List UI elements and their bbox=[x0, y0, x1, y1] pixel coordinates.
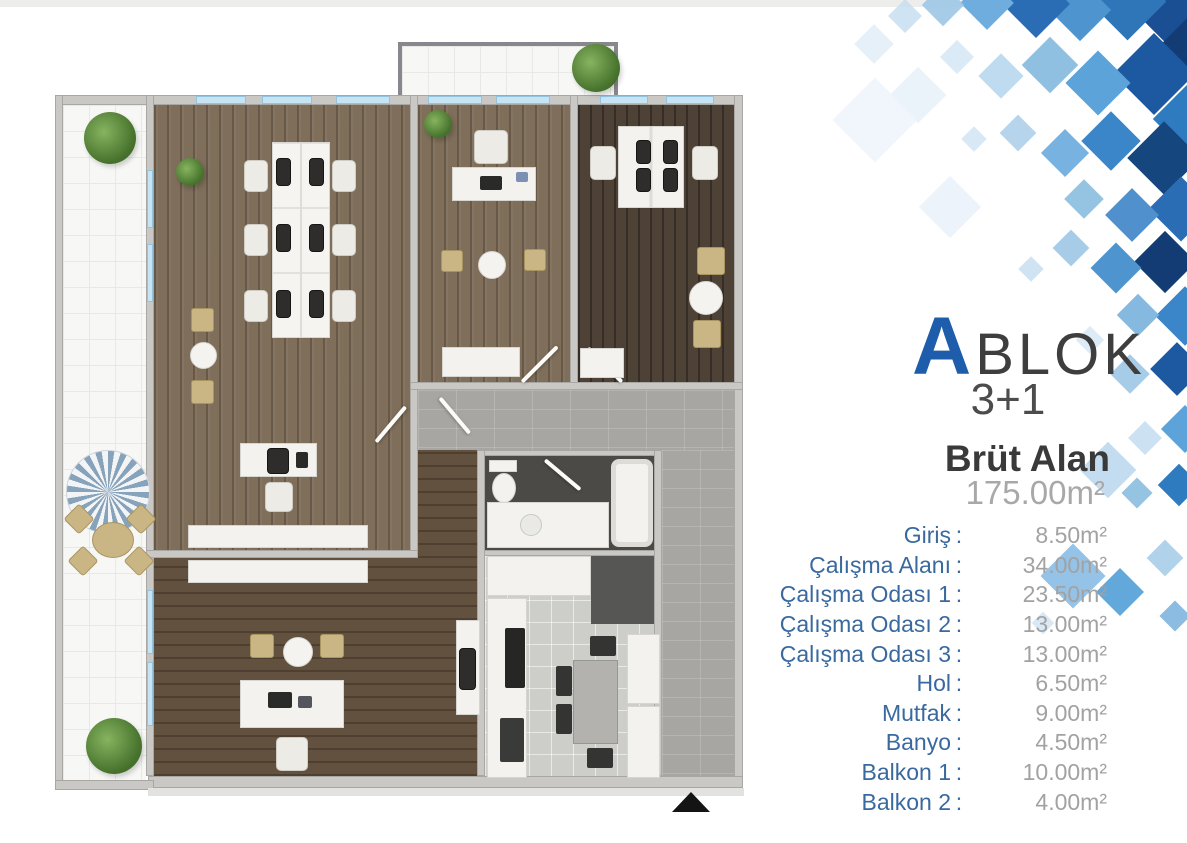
stool bbox=[524, 249, 546, 271]
monitor bbox=[268, 692, 292, 708]
room-label: Balkon 2 bbox=[735, 791, 951, 814]
plan-shadow bbox=[148, 788, 744, 796]
legend-row: Balkon 1:10.00m² bbox=[735, 758, 1107, 788]
wall-ws1-south bbox=[146, 550, 418, 558]
diamond-decor bbox=[1053, 230, 1090, 267]
floorplan-poster: A BLOK 3+1 Brüt Alan 175.00m² Giriş:8.50… bbox=[0, 0, 1187, 843]
legend-row: Mutfak:9.00m² bbox=[735, 699, 1107, 729]
chair bbox=[332, 224, 356, 256]
diamond-decor bbox=[890, 67, 947, 124]
chair bbox=[590, 146, 616, 180]
legend-row: Banyo:4.50m² bbox=[735, 728, 1107, 758]
bathtub bbox=[611, 459, 653, 547]
chair bbox=[244, 160, 268, 192]
legend-row: Çalışma Alanı:34.00m² bbox=[735, 551, 1107, 581]
room-value: 13.00m² bbox=[967, 643, 1107, 666]
room-label: Çalışma Odası 2 bbox=[735, 613, 951, 636]
wall-hall-north bbox=[410, 382, 743, 390]
legend-row: Çalışma Odası 2:13.00m² bbox=[735, 610, 1107, 640]
diamond-decor bbox=[940, 40, 974, 74]
chair bbox=[636, 168, 651, 192]
room-value: 34.00m² bbox=[967, 554, 1107, 577]
chair bbox=[276, 737, 308, 771]
unit-type: 3+1 bbox=[950, 378, 1066, 422]
diamond-decor bbox=[1161, 405, 1187, 453]
cabinet bbox=[188, 560, 368, 583]
fridge bbox=[627, 634, 660, 704]
laptop bbox=[298, 696, 312, 708]
side-table bbox=[190, 342, 217, 369]
shelf bbox=[580, 348, 624, 378]
diamond-decor bbox=[1135, 0, 1187, 57]
room-label: Giriş bbox=[735, 524, 951, 547]
room-value: 4.00m² bbox=[967, 791, 1107, 814]
plant bbox=[176, 158, 204, 186]
colon: : bbox=[951, 702, 967, 725]
diamond-decor bbox=[1150, 342, 1187, 396]
diamond-decor bbox=[1128, 421, 1162, 455]
diamond-decor bbox=[1161, 7, 1187, 81]
chair bbox=[474, 130, 508, 164]
chair bbox=[459, 648, 476, 690]
diamond-decor bbox=[1041, 129, 1089, 177]
diamond-decor bbox=[1064, 179, 1104, 219]
monitor bbox=[296, 452, 308, 468]
wall-bath-top bbox=[477, 450, 662, 456]
colon: : bbox=[951, 613, 967, 636]
plant bbox=[572, 44, 620, 92]
colon: : bbox=[951, 643, 967, 666]
chair bbox=[265, 482, 293, 512]
gross-area-label: Brüt Alan bbox=[945, 440, 1110, 477]
chair bbox=[556, 666, 572, 696]
north-arrow-icon bbox=[672, 792, 710, 812]
colon: : bbox=[951, 524, 967, 547]
chair bbox=[663, 140, 678, 164]
room-list: Giriş:8.50m²Çalışma Alanı:34.00m²Çalışma… bbox=[735, 521, 1107, 817]
stool bbox=[320, 634, 344, 658]
chair bbox=[276, 158, 291, 186]
window bbox=[600, 96, 648, 104]
chair bbox=[309, 290, 324, 318]
side-table bbox=[689, 281, 723, 315]
room-value: 13.00m² bbox=[967, 613, 1107, 636]
diamond-decor bbox=[919, 176, 981, 238]
diamond-decor bbox=[961, 126, 986, 151]
chair bbox=[332, 160, 356, 192]
diamond-decor bbox=[1022, 37, 1079, 94]
diamond-decor bbox=[1159, 600, 1187, 631]
toilet bbox=[492, 473, 516, 503]
chair bbox=[267, 448, 289, 474]
wall-balcony-bottom bbox=[55, 780, 154, 790]
wall-kitchen-left bbox=[477, 450, 485, 776]
colon: : bbox=[951, 731, 967, 754]
legend-row: Balkon 2:4.00m² bbox=[735, 787, 1107, 817]
room-label: Çalışma Alanı bbox=[735, 554, 951, 577]
stove bbox=[500, 718, 524, 762]
diamond-decor bbox=[1147, 540, 1184, 577]
diamond-decor bbox=[1158, 464, 1187, 506]
window bbox=[496, 96, 550, 104]
window bbox=[666, 96, 714, 104]
double-desk bbox=[618, 126, 684, 208]
diamond-decor bbox=[833, 78, 918, 163]
diamond-decor bbox=[1148, 176, 1187, 241]
diamond-decor bbox=[1000, 115, 1037, 152]
room-value: 10.00m² bbox=[967, 761, 1107, 784]
stool bbox=[441, 250, 463, 272]
colon: : bbox=[951, 791, 967, 814]
chair bbox=[309, 158, 324, 186]
sink bbox=[520, 514, 542, 536]
room-value: 9.00m² bbox=[967, 702, 1107, 725]
diamond-decor bbox=[1134, 231, 1187, 293]
chair bbox=[332, 290, 356, 322]
pantry-cabinet bbox=[627, 706, 660, 778]
kitchen-table bbox=[573, 660, 618, 744]
chair bbox=[276, 290, 291, 318]
plant bbox=[84, 112, 136, 164]
room-balcony-1 bbox=[63, 105, 146, 783]
monitor bbox=[480, 176, 502, 190]
wall-ws1-right bbox=[410, 95, 418, 558]
side-table bbox=[478, 251, 506, 279]
stool bbox=[697, 247, 725, 275]
room-value: 8.50m² bbox=[967, 524, 1107, 547]
room-hall bbox=[418, 390, 734, 450]
chair bbox=[590, 636, 616, 656]
cooktop bbox=[505, 628, 525, 688]
room-value: 4.50m² bbox=[967, 731, 1107, 754]
diamond-decor bbox=[1127, 121, 1187, 195]
plant bbox=[424, 110, 452, 138]
window bbox=[147, 662, 153, 726]
chair bbox=[244, 290, 268, 322]
shelf bbox=[442, 347, 520, 377]
window bbox=[262, 96, 312, 104]
desk-pad bbox=[516, 172, 528, 182]
legend-row: Hol:6.50m² bbox=[735, 669, 1107, 699]
colon: : bbox=[951, 554, 967, 577]
chair bbox=[276, 224, 291, 252]
diamond-decor bbox=[854, 24, 894, 64]
room-label: Çalışma Odası 3 bbox=[735, 643, 951, 666]
window bbox=[336, 96, 390, 104]
diamond-decor bbox=[978, 53, 1023, 98]
chair bbox=[692, 146, 718, 180]
legend-row: Çalışma Odası 1:23.50m² bbox=[735, 580, 1107, 610]
side-table bbox=[283, 637, 313, 667]
block-letter: A bbox=[912, 306, 971, 388]
diamond-decor bbox=[1113, 33, 1187, 115]
floorplan bbox=[0, 0, 760, 843]
window bbox=[196, 96, 246, 104]
chair bbox=[636, 140, 651, 164]
window bbox=[147, 170, 153, 228]
cabinet bbox=[188, 525, 368, 548]
stool bbox=[250, 634, 274, 658]
gross-area-value: 175.00m² bbox=[966, 476, 1105, 509]
legend-row: Giriş:8.50m² bbox=[735, 521, 1107, 551]
room-value: 6.50m² bbox=[967, 672, 1107, 695]
diamond-decor bbox=[1081, 111, 1140, 170]
chair bbox=[556, 704, 572, 734]
balcony-table bbox=[92, 522, 134, 558]
room-label: Hol bbox=[735, 672, 951, 695]
chair bbox=[663, 168, 678, 192]
stool bbox=[693, 320, 721, 348]
room-entrance bbox=[662, 450, 734, 776]
kitchen-cabinets bbox=[487, 556, 591, 596]
legend-row: Çalışma Odası 3:13.00m² bbox=[735, 639, 1107, 669]
room-label: Banyo bbox=[735, 731, 951, 754]
kitchen-dark-floor bbox=[591, 556, 654, 624]
toilet-tank bbox=[489, 460, 517, 472]
room-label: Balkon 1 bbox=[735, 761, 951, 784]
wall-outer-left bbox=[55, 95, 63, 790]
diamond-decor bbox=[1155, 286, 1187, 345]
window bbox=[428, 96, 482, 104]
stool bbox=[191, 308, 214, 332]
window bbox=[147, 590, 153, 654]
room-value: 23.50m² bbox=[967, 583, 1107, 606]
wall-ws2-ws3 bbox=[570, 95, 578, 390]
desk bbox=[240, 680, 344, 728]
chair bbox=[587, 748, 613, 768]
room-workarea-neck bbox=[418, 450, 477, 558]
colon: : bbox=[951, 583, 967, 606]
window bbox=[147, 244, 153, 302]
room-workarea bbox=[154, 558, 477, 776]
plant bbox=[86, 718, 142, 774]
diamond-decor bbox=[1153, 81, 1187, 157]
colon: : bbox=[951, 761, 967, 784]
colon: : bbox=[951, 672, 967, 695]
room-label: Çalışma Odası 1 bbox=[735, 583, 951, 606]
diamond-decor bbox=[1091, 243, 1142, 294]
chair bbox=[309, 224, 324, 252]
chair bbox=[244, 224, 268, 256]
diamond-decor bbox=[1065, 50, 1130, 115]
diamond-decor bbox=[1018, 256, 1043, 281]
diamond-decor bbox=[1121, 477, 1152, 508]
stool bbox=[191, 380, 214, 404]
bathroom-counter bbox=[487, 502, 609, 548]
diamond-decor bbox=[1105, 188, 1159, 242]
room-label: Mutfak bbox=[735, 702, 951, 725]
